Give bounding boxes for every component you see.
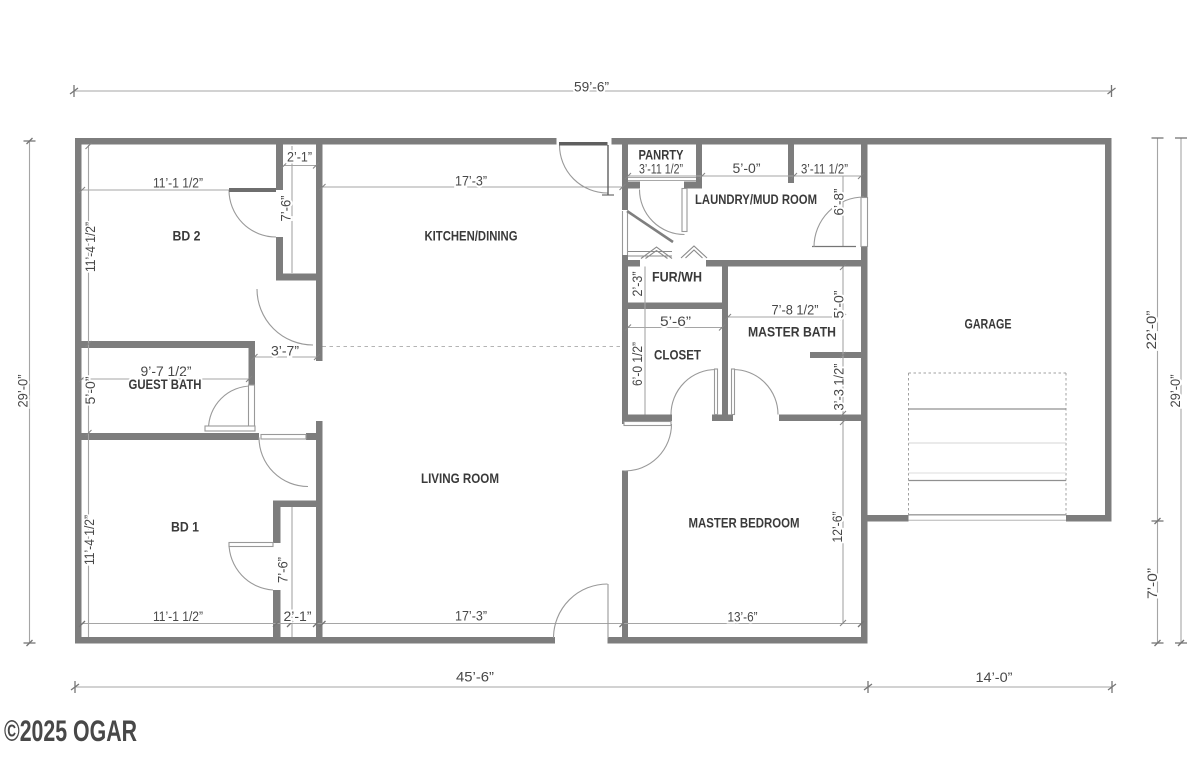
svg-text:11’-4 1/2”: 11’-4 1/2” bbox=[81, 515, 97, 565]
svg-text:FUR/WH: FUR/WH bbox=[652, 269, 702, 285]
svg-text:KITCHEN/DINING: KITCHEN/DINING bbox=[425, 228, 518, 244]
svg-text:3’-11 1/2”: 3’-11 1/2” bbox=[639, 161, 683, 177]
svg-text:3’-7”: 3’-7” bbox=[271, 343, 299, 359]
svg-text:LAUNDRY/MUD ROOM: LAUNDRY/MUD ROOM bbox=[695, 191, 817, 207]
svg-text:29’-0”: 29’-0” bbox=[15, 374, 31, 407]
svg-text:2’-1”: 2’-1” bbox=[287, 149, 312, 165]
svg-text:©2025 OGAR: ©2025 OGAR bbox=[4, 715, 137, 748]
svg-text:12’-6”: 12’-6” bbox=[829, 511, 845, 542]
svg-text:11’-1 1/2”: 11’-1 1/2” bbox=[153, 175, 203, 191]
svg-text:11’-1 1/2”: 11’-1 1/2” bbox=[153, 608, 203, 624]
svg-text:6’-8”: 6’-8” bbox=[831, 188, 847, 215]
svg-text:3’-11 1/2”: 3’-11 1/2” bbox=[801, 161, 848, 177]
svg-text:GARAGE: GARAGE bbox=[965, 316, 1012, 332]
svg-text:2’-1”: 2’-1” bbox=[284, 608, 312, 624]
svg-text:11’-4 1/2”: 11’-4 1/2” bbox=[82, 222, 98, 272]
svg-text:3’-3 1/2”: 3’-3 1/2” bbox=[831, 363, 847, 410]
svg-text:59’-6”: 59’-6” bbox=[574, 79, 609, 95]
svg-text:CLOSET: CLOSET bbox=[654, 347, 701, 363]
svg-text:22’-0”: 22’-0” bbox=[1143, 310, 1159, 349]
svg-text:6’-0 1/2”: 6’-0 1/2” bbox=[629, 342, 645, 386]
svg-text:5’-6”: 5’-6” bbox=[660, 313, 691, 329]
svg-text:29’-0”: 29’-0” bbox=[1167, 374, 1183, 407]
svg-text:17’-3”: 17’-3” bbox=[455, 608, 487, 624]
svg-text:LIVING ROOM: LIVING ROOM bbox=[421, 470, 499, 486]
svg-text:BD 1: BD 1 bbox=[171, 519, 199, 535]
svg-text:14’-0”: 14’-0” bbox=[976, 669, 1013, 685]
svg-text:7’-0”: 7’-0” bbox=[1144, 568, 1160, 599]
svg-text:MASTER BATH: MASTER BATH bbox=[748, 324, 836, 340]
svg-text:7’-8 1/2”: 7’-8 1/2” bbox=[772, 302, 819, 318]
svg-text:17’-3”: 17’-3” bbox=[455, 173, 487, 189]
svg-text:45’-6”: 45’-6” bbox=[456, 669, 494, 685]
svg-text:7’-6”: 7’-6” bbox=[275, 557, 291, 583]
svg-text:7’-6”: 7’-6” bbox=[278, 195, 294, 221]
svg-text:PANRTY: PANRTY bbox=[639, 147, 685, 163]
svg-text:13’-6”: 13’-6” bbox=[728, 609, 758, 625]
svg-text:5’-0”: 5’-0” bbox=[733, 160, 761, 176]
svg-text:BD 2: BD 2 bbox=[173, 228, 201, 244]
svg-text:2’-3”: 2’-3” bbox=[629, 271, 645, 296]
svg-text:5’-0”: 5’-0” bbox=[82, 376, 98, 404]
svg-text:GUEST BATH: GUEST BATH bbox=[129, 376, 202, 392]
svg-text:MASTER BEDROOM: MASTER BEDROOM bbox=[689, 515, 800, 531]
svg-text:5’-0”: 5’-0” bbox=[831, 290, 847, 318]
